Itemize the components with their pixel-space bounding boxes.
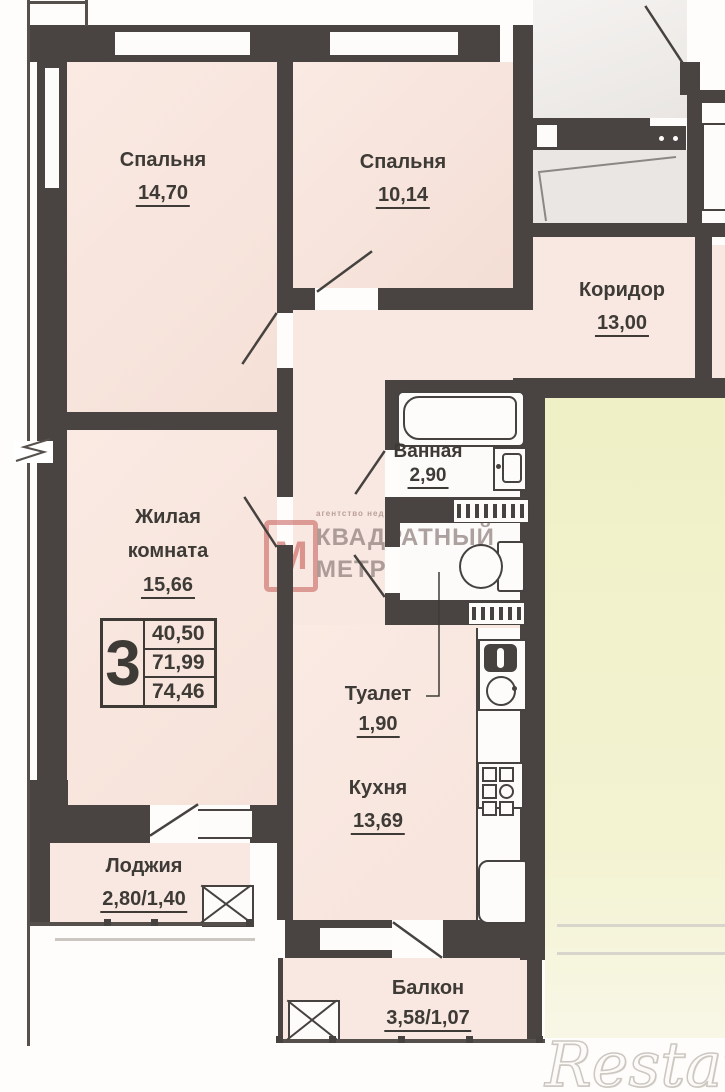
room-name: Кухня xyxy=(349,776,407,800)
stove-burner xyxy=(499,767,514,782)
window-bedroom-2 xyxy=(330,30,458,57)
room-area: 15,66 xyxy=(103,573,233,597)
elevator-shaft xyxy=(702,123,725,211)
wall-stub-a xyxy=(680,62,700,95)
entrance-door-dot xyxy=(673,136,678,141)
vent-shaft-toilet xyxy=(468,602,525,625)
bathroom-sink-tap xyxy=(496,464,501,469)
stove-burner xyxy=(499,784,514,799)
room-area: 2,90 xyxy=(394,464,463,488)
summary-box: 3 40,50 71,99 74,46 xyxy=(100,618,217,708)
parapet-tick xyxy=(276,1036,283,1043)
wall-corridor-top xyxy=(533,223,725,237)
room-area: 1,90 xyxy=(345,712,412,736)
parapet-tick xyxy=(536,1036,543,1043)
room-label-bedroom-1: Спальня 14,70 xyxy=(120,148,206,205)
room-label-kitchen: Кухня 13,69 xyxy=(349,776,407,833)
adjacent-room-floor xyxy=(545,398,725,1038)
room-name: Лоджия xyxy=(100,854,187,878)
stove xyxy=(477,762,524,809)
room-name: Балкон xyxy=(384,976,471,1000)
wall-left-lower xyxy=(28,780,68,843)
wall-divider-upper xyxy=(277,62,293,313)
parapet-tick xyxy=(398,1036,405,1043)
window-loggia xyxy=(198,809,252,839)
wall-stair-right xyxy=(687,95,702,237)
window-bedroom-1-side xyxy=(43,68,61,188)
wall-loggia-left xyxy=(28,843,50,925)
stove-burner xyxy=(482,767,497,782)
facade-line-left-lower xyxy=(27,460,30,1046)
stairwell-upper-floor xyxy=(533,0,687,118)
wall-niche xyxy=(536,124,558,148)
wall-balcony-right xyxy=(527,958,542,1042)
stove-burner xyxy=(482,801,497,816)
wall-bedroom2-right xyxy=(513,25,533,310)
parapet-tick xyxy=(151,919,158,926)
toilet-bowl xyxy=(459,544,503,589)
room-name: Туалет xyxy=(345,682,412,706)
window-bedroom-1 xyxy=(115,30,250,57)
stove-burner xyxy=(499,801,514,816)
room-area: 2,80/1,40 xyxy=(100,887,187,911)
portal-watermark: Restate xyxy=(545,1028,725,1092)
stairwell-lower-floor xyxy=(533,150,687,223)
room-label-bedroom-2: Спальня 10,14 xyxy=(360,150,446,207)
room-area: 10,14 xyxy=(360,183,446,207)
summary-living-area: 40,50 xyxy=(145,621,214,650)
wall-toilet-left-upper xyxy=(385,523,400,547)
parapet-tick xyxy=(104,919,111,926)
wall-stub-b xyxy=(700,90,725,103)
entrance-door-dot xyxy=(659,136,664,141)
kitchen-sink-dot xyxy=(512,686,517,691)
bathroom-sink-bowl xyxy=(502,453,522,483)
wall-loggia-top-right xyxy=(250,805,285,843)
entrance-door-icon xyxy=(650,126,686,150)
adjacent-room-line xyxy=(557,952,725,955)
door-swing-balcony xyxy=(394,923,441,957)
room-name: Спальня xyxy=(120,148,206,172)
room-label-living-room: Жилая комната 15,66 xyxy=(103,500,233,597)
summary-rooms-count: 3 xyxy=(103,621,145,705)
loggia-outer-line xyxy=(55,938,255,941)
adjacent-room-line xyxy=(557,924,725,927)
facade-line-top xyxy=(28,1,86,4)
corridor-strip-floor xyxy=(293,310,533,380)
parapet-tick xyxy=(246,919,253,926)
loggia-parapet xyxy=(28,922,252,926)
room-area: 14,70 xyxy=(120,181,206,205)
bedroom-1-floor xyxy=(67,62,277,412)
balcony-parapet xyxy=(276,1039,545,1043)
facade-line-top-v xyxy=(85,0,88,26)
facade-line-left-upper xyxy=(27,0,30,444)
kitchen-sink-slot xyxy=(497,648,504,668)
room-name: Коридор xyxy=(579,278,665,302)
stove-burner xyxy=(482,784,497,799)
room-area: 13,69 xyxy=(349,809,407,833)
wall-corridor-right xyxy=(695,237,712,398)
wall-balcony-left xyxy=(278,958,283,1042)
room-name: Спальня xyxy=(360,150,446,174)
room-name: Жилая комната xyxy=(103,500,233,568)
parapet-tick xyxy=(329,1036,336,1043)
room-label-balcony: Балкон 3,58/1,07 xyxy=(384,976,471,1030)
floor-plan: М агентство недвижимости КВАДРАТНЫЙ МЕТР xyxy=(0,0,725,1092)
door-swing-loggia xyxy=(151,805,197,835)
wall-bedroom2-bottom-left xyxy=(293,288,315,310)
wall-divider-lower xyxy=(277,545,293,920)
summary-area-without-balcony: 71,99 xyxy=(145,650,214,679)
agency-watermark-line2: МЕТР xyxy=(316,556,387,584)
room-label-toilet: Туалет 1,90 xyxy=(345,682,412,736)
kitchen-counter xyxy=(478,860,527,924)
wall-kitchen-bottom-right xyxy=(443,920,545,958)
room-name: Ванная xyxy=(394,441,463,462)
room-label-bathroom: Ванная 2,90 xyxy=(394,441,463,488)
kitchen-sink-round xyxy=(486,676,516,706)
wall-bedroom2-bottom-right xyxy=(378,288,513,310)
room-label-loggia: Лоджия 2,80/1,40 xyxy=(100,854,187,911)
room-area: 3,58/1,07 xyxy=(384,1006,471,1030)
bathtub-inner xyxy=(403,396,517,440)
room-area: 13,00 xyxy=(579,311,665,335)
corridor-floor-sliver xyxy=(712,245,725,378)
parapet-tick xyxy=(466,1036,473,1043)
summary-total-area: 74,46 xyxy=(145,678,214,705)
room-label-corridor: Коридор 13,00 xyxy=(579,278,665,335)
window-kitchen xyxy=(320,926,392,952)
wall-divider-mid xyxy=(277,368,293,497)
vent-shaft-bathroom xyxy=(453,499,529,523)
wall-bedroom1-bottom xyxy=(37,412,277,430)
